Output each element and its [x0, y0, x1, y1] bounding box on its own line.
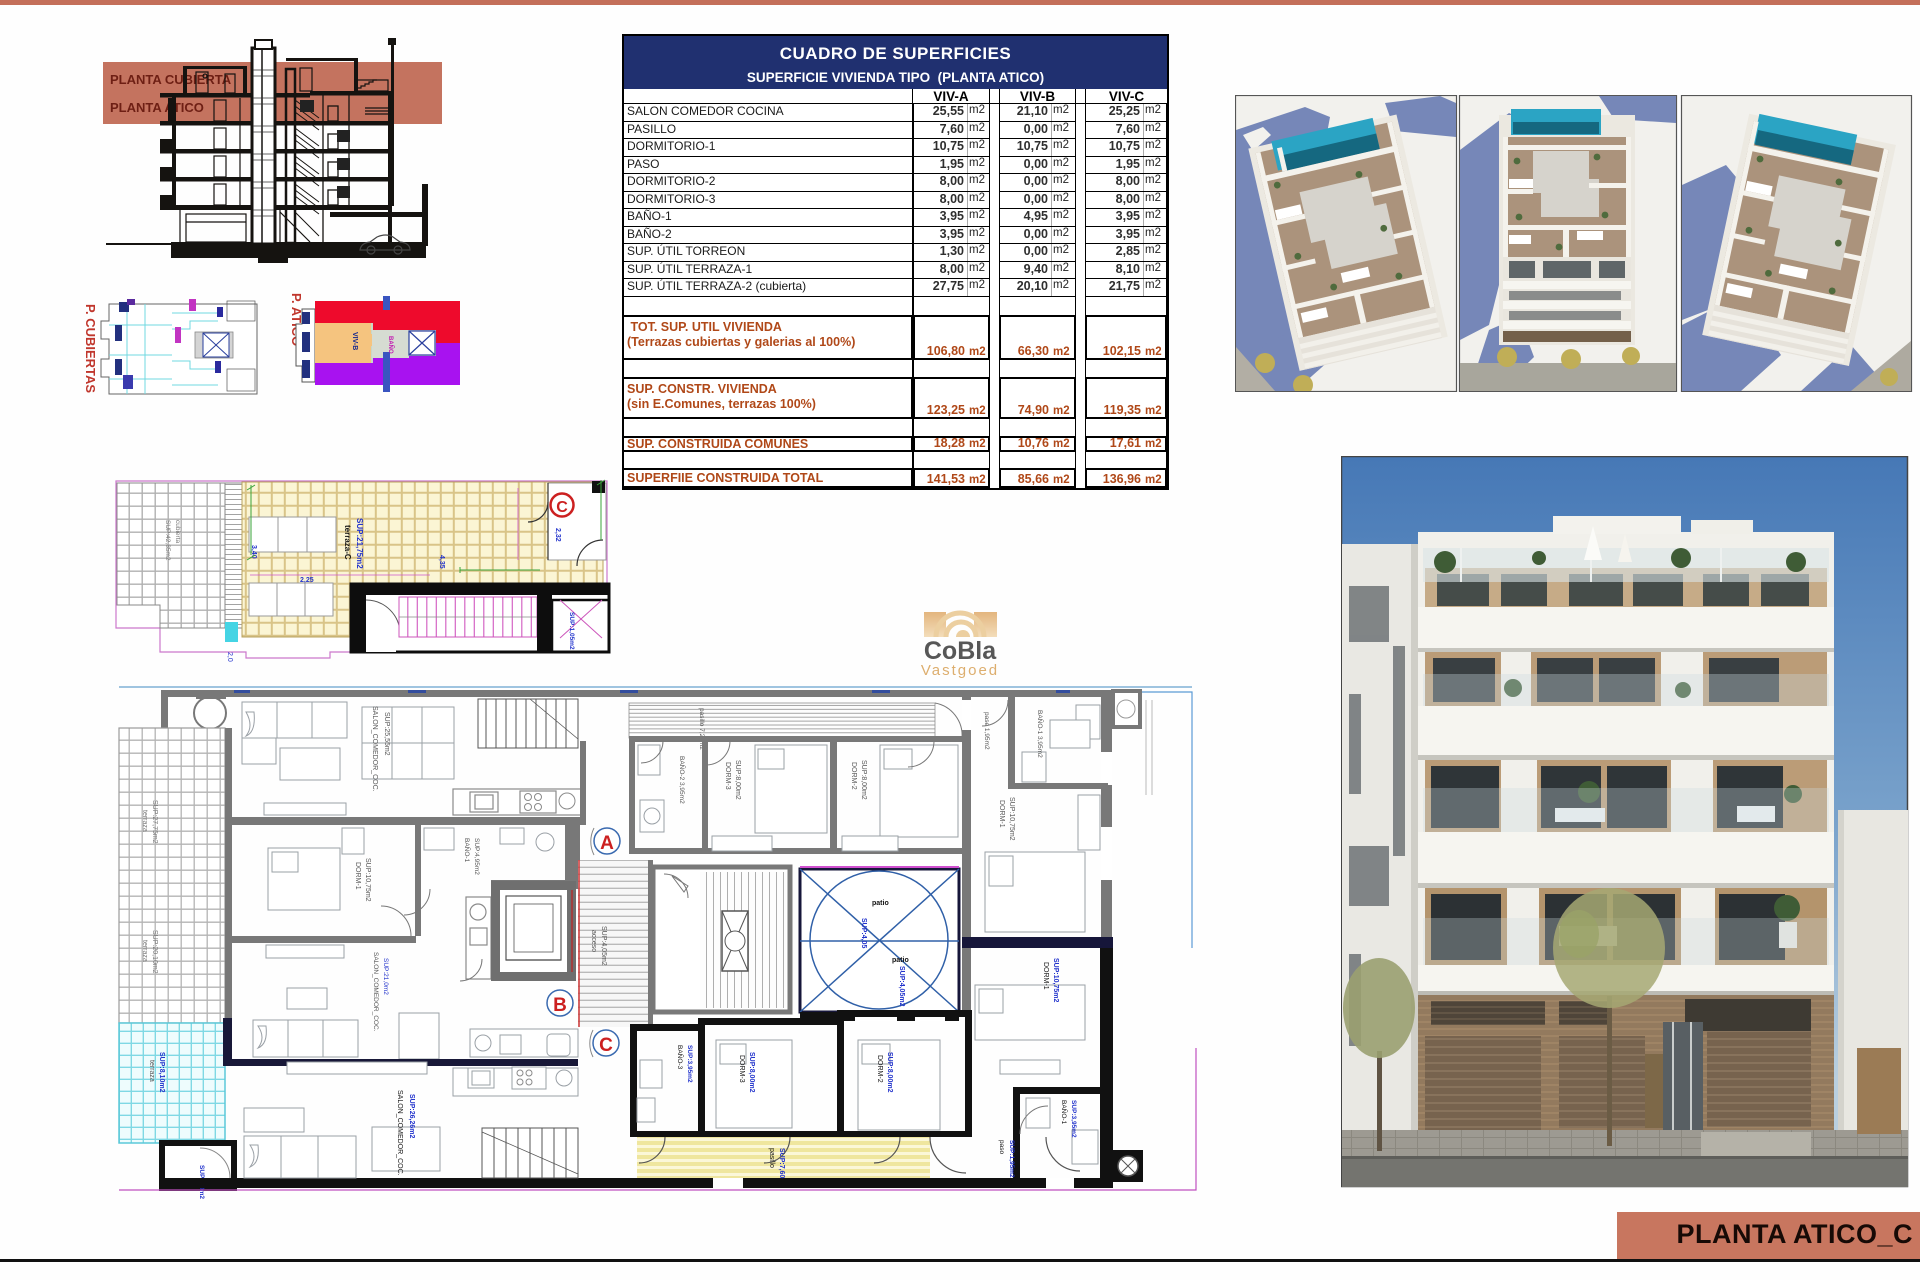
svg-text:P. CUBIERTAS: P. CUBIERTAS	[83, 304, 98, 393]
svg-text:SUP:7,60: SUP:7,60	[778, 1148, 785, 1178]
svg-text:SUP:1,95m2: SUP:1,95m2	[1008, 1140, 1015, 1178]
svg-text:4,35: 4,35	[438, 555, 445, 569]
svg-text:SUP:10,75m2: SUP:10,75m2	[364, 858, 371, 902]
svg-text:2,0: 2,0	[226, 652, 233, 662]
svg-text:BAÑO-2 3,95m2: BAÑO-2 3,95m2	[678, 756, 687, 804]
svg-text:SUP:8,00m2: SUP:8,00m2	[860, 760, 867, 800]
svg-text:BAÑO-1: BAÑO-1	[1060, 1100, 1069, 1125]
svg-text:DORM-1: DORM-1	[354, 862, 361, 890]
svg-text:pase 1,95m2: pase 1,95m2	[983, 712, 990, 750]
svg-text:SUP:4,95m2: SUP:4,95m2	[473, 838, 480, 875]
svg-text:2,25: 2,25	[300, 577, 314, 584]
svg-text:SUP:25,55m2: SUP:25,55m2	[383, 712, 390, 756]
svg-text:acceso: acceso	[590, 930, 597, 952]
svg-text:DORM-3: DORM-3	[724, 762, 731, 790]
svg-text:C: C	[556, 499, 568, 516]
svg-text:SUP:26,26m2: SUP:26,26m2	[408, 1094, 415, 1138]
svg-text:SUP:42,85m2: SUP:42,85m2	[164, 520, 171, 561]
svg-text:SALON_COMEDOR_COC.: SALON_COMEDOR_COC.	[372, 952, 379, 1032]
svg-text:terraza: terraza	[141, 810, 148, 832]
svg-text:SUP:1,05m2: SUP:1,05m2	[568, 612, 575, 650]
svg-text:SUP:27,75m2: SUP:27,75m2	[151, 800, 158, 844]
svg-text:SUP:4,05m2: SUP:4,05m2	[898, 966, 905, 1007]
svg-text:SUP:8,00m2: SUP:8,00m2	[886, 1052, 893, 1093]
svg-text:terraza: terraza	[148, 1060, 155, 1082]
svg-text:cubierta: cubierta	[174, 520, 181, 544]
svg-text:terraza: terraza	[141, 940, 148, 962]
svg-text:SUP:4,05m2: SUP:4,05m2	[600, 926, 607, 966]
svg-text:SUP:3,95m2: SUP:3,95m2	[686, 1045, 693, 1083]
svg-text:SUP:10,75m2: SUP:10,75m2	[1052, 958, 1059, 1002]
svg-text:DORM-2: DORM-2	[850, 762, 857, 790]
svg-text:DORM-3: DORM-3	[738, 1055, 745, 1083]
svg-text:SALON_COMEDOR_COC.: SALON_COMEDOR_COC.	[396, 1090, 403, 1176]
svg-text:DORM-1: DORM-1	[998, 800, 1005, 828]
svg-text:VIV-B: VIV-B	[351, 332, 358, 350]
svg-text:BAÑO: BAÑO	[387, 336, 394, 354]
svg-text:patio: patio	[892, 957, 909, 964]
svg-text:BAÑO-1 3,95m2: BAÑO-1 3,95m2	[1036, 710, 1045, 758]
svg-text:Vastgoed: Vastgoed	[921, 662, 999, 679]
svg-text:SUP:20,10m2: SUP:20,10m2	[151, 930, 158, 974]
svg-text:BAÑO-1: BAÑO-1	[463, 838, 472, 863]
svg-text:2,32: 2,32	[554, 528, 561, 542]
svg-text:patio: patio	[872, 900, 889, 907]
svg-text:BAÑO-3: BAÑO-3	[676, 1045, 685, 1070]
svg-text:SUP:10,75m2: SUP:10,75m2	[1008, 797, 1015, 841]
svg-text:SUP:3,95m2: SUP:3,95m2	[1070, 1100, 1077, 1138]
svg-text:CoBla: CoBla	[924, 637, 997, 665]
svg-text:SUP:8,00m2: SUP:8,00m2	[734, 760, 741, 800]
svg-text:pasillo: pasillo	[768, 1148, 775, 1168]
svg-text:SUP:8,00m2: SUP:8,00m2	[748, 1052, 755, 1093]
svg-text:B: B	[553, 995, 567, 1016]
svg-text:terraza-C: terraza-C	[343, 525, 352, 560]
svg-text:DORM-2: DORM-2	[876, 1055, 883, 1083]
svg-text:paso: paso	[998, 1140, 1005, 1154]
svg-text:SALON_COMEDOR_COC.: SALON_COMEDOR_COC.	[371, 706, 378, 792]
svg-text:SUP:21,75m2: SUP:21,75m2	[355, 518, 364, 569]
svg-text:C: C	[599, 1035, 613, 1056]
svg-text:A: A	[600, 833, 614, 854]
svg-text:PLANTA ATICO: PLANTA ATICO	[110, 100, 204, 115]
svg-text:SUP:21,0m2: SUP:21,0m2	[382, 958, 389, 995]
svg-text:DORM-1: DORM-1	[1042, 962, 1049, 990]
svg-text:SUP:4,05: SUP:4,05	[860, 918, 867, 948]
svg-text:PLANTA CUBIERTA: PLANTA CUBIERTA	[110, 72, 232, 87]
svg-text:SUP:8,10m2: SUP:8,10m2	[158, 1052, 165, 1093]
